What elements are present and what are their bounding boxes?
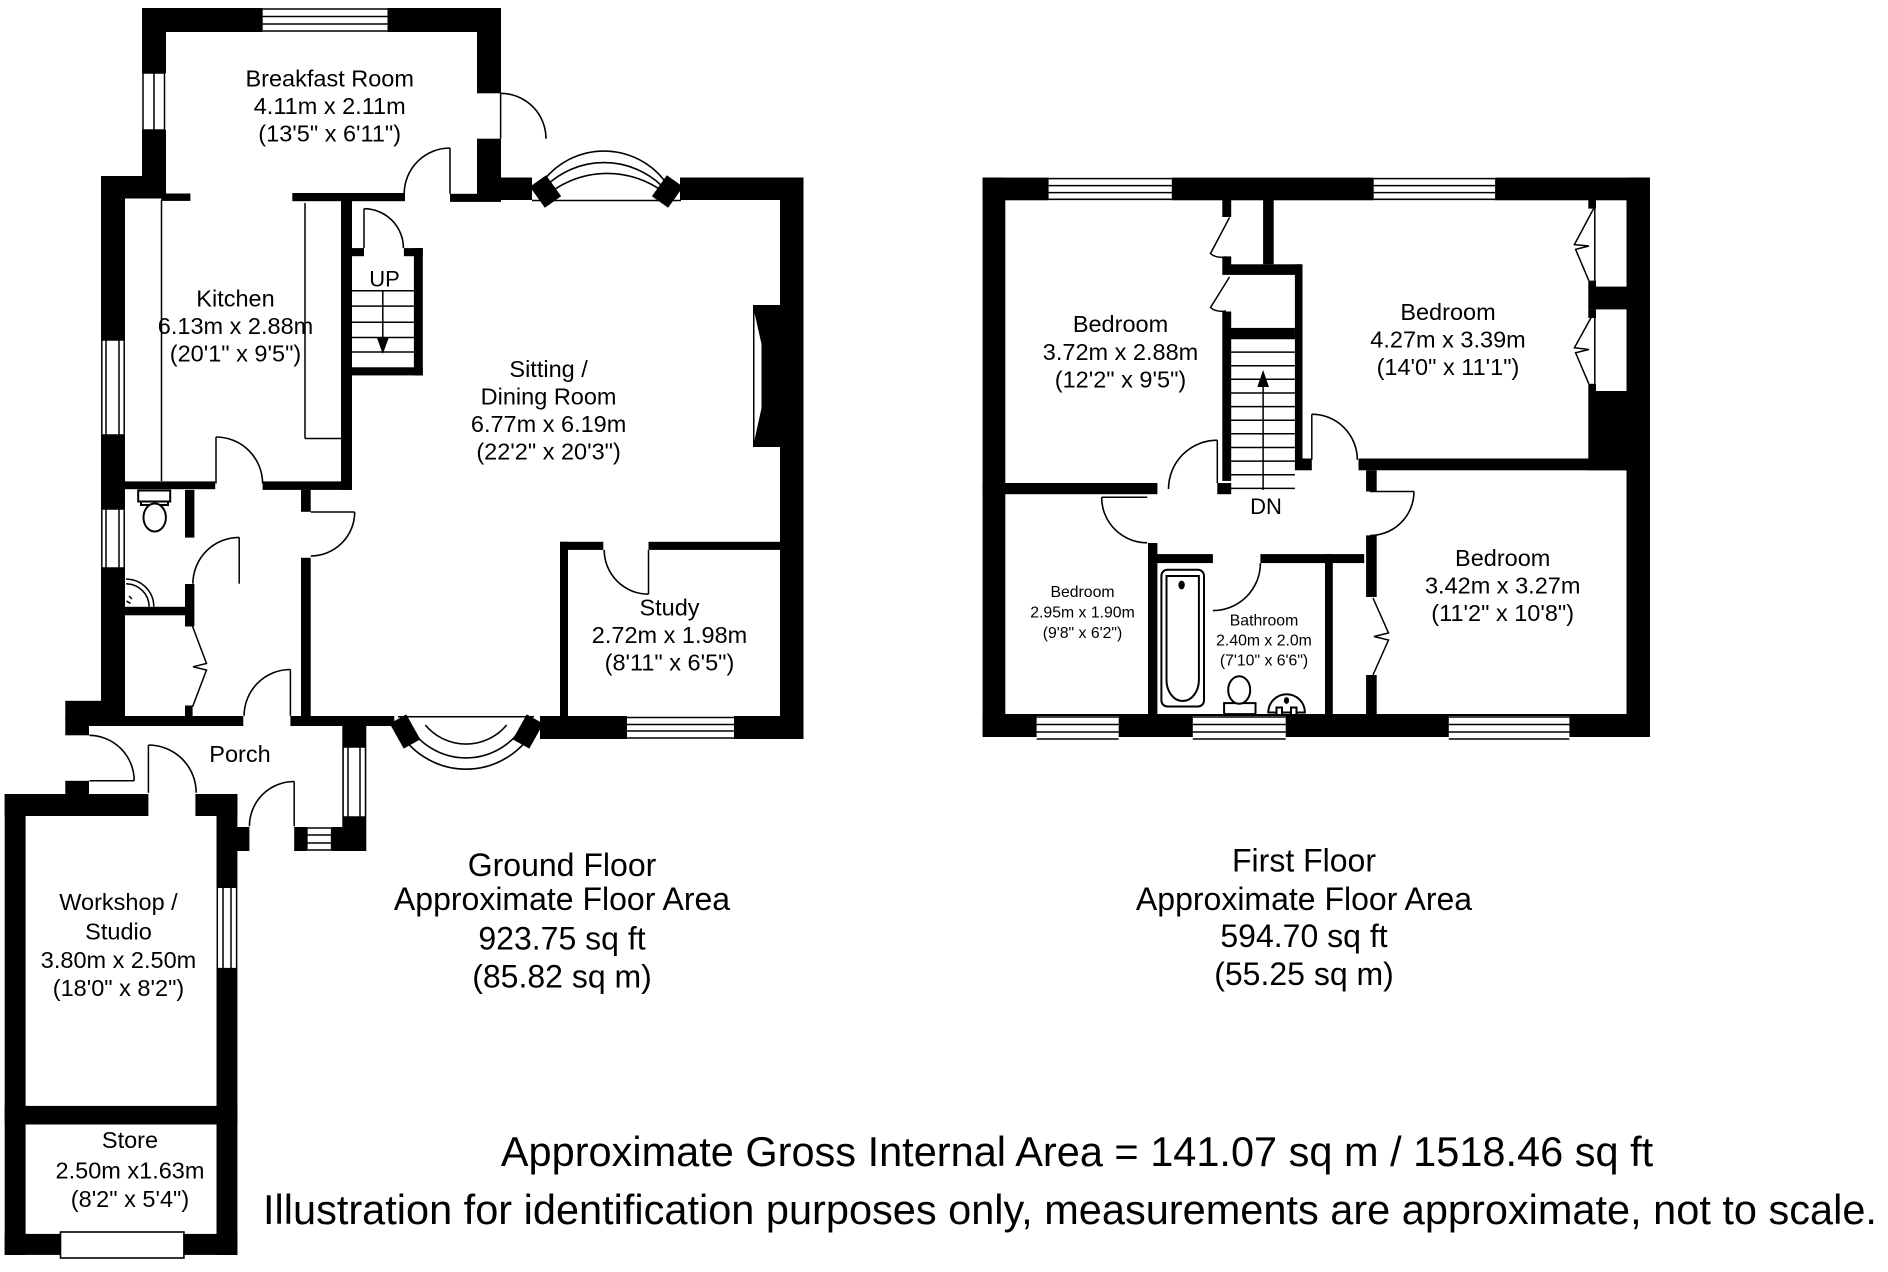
svg-text:Illustration for identificatio: Illustration for identification purposes… (263, 1186, 1877, 1233)
svg-text:Store: Store (102, 1127, 158, 1153)
svg-text:Bedroom: Bedroom (1050, 584, 1114, 601)
svg-text:2.72m x 1.98m: 2.72m x 1.98m (592, 622, 747, 648)
svg-text:Porch: Porch (209, 741, 270, 767)
svg-text:Studio: Studio (85, 919, 152, 945)
svg-text:Bedroom: Bedroom (1073, 311, 1168, 337)
svg-text:3.72m x 2.88m: 3.72m x 2.88m (1043, 339, 1198, 365)
svg-text:(20'1" x 9'5"): (20'1" x 9'5") (170, 341, 301, 367)
svg-text:Sitting /: Sitting / (509, 356, 588, 382)
svg-text:(7'10" x 6'6"): (7'10" x 6'6") (1220, 653, 1308, 670)
svg-text:Approximate Floor Area: Approximate Floor Area (394, 881, 730, 917)
svg-text:4.27m x 3.39m: 4.27m x 3.39m (1370, 327, 1525, 353)
svg-text:Approximate Gross Internal Are: Approximate Gross Internal Area = 141.07… (501, 1128, 1654, 1175)
svg-text:Breakfast Room: Breakfast Room (245, 66, 413, 92)
svg-text:First Floor: First Floor (1232, 843, 1376, 879)
svg-text:(13'5" x 6'11"): (13'5" x 6'11") (258, 121, 401, 147)
svg-text:(55.25 sq m): (55.25 sq m) (1214, 956, 1394, 992)
svg-text:Dining Room: Dining Room (481, 384, 617, 410)
svg-text:2.40m x 2.0m: 2.40m x 2.0m (1216, 633, 1312, 650)
svg-text:(8'11" x 6'5"): (8'11" x 6'5") (605, 650, 735, 676)
svg-text:Kitchen: Kitchen (196, 286, 274, 312)
svg-text:923.75 sq ft: 923.75 sq ft (478, 921, 645, 957)
svg-text:(22'2" x 20'3"): (22'2" x 20'3") (476, 439, 621, 465)
svg-text:(12'2" x 9'5"): (12'2" x 9'5") (1055, 367, 1186, 393)
svg-text:DN: DN (1250, 494, 1282, 519)
svg-text:Bedroom: Bedroom (1455, 545, 1550, 571)
svg-text:Ground Floor: Ground Floor (468, 847, 657, 883)
svg-text:594.70 sq ft: 594.70 sq ft (1220, 918, 1387, 954)
svg-text:6.13m x 2.88m: 6.13m x 2.88m (158, 313, 313, 339)
svg-text:2.50m x1.63m: 2.50m x1.63m (56, 1158, 205, 1184)
svg-text:Bedroom: Bedroom (1400, 299, 1495, 325)
svg-text:Study: Study (639, 595, 699, 621)
svg-text:(8'2" x 5'4"): (8'2" x 5'4") (71, 1186, 189, 1212)
svg-text:Approximate Floor Area: Approximate Floor Area (1136, 881, 1472, 917)
svg-text:3.42m x 3.27m: 3.42m x 3.27m (1425, 573, 1580, 599)
svg-text:(85.82 sq m): (85.82 sq m) (472, 959, 652, 995)
svg-text:Workshop /: Workshop / (59, 889, 178, 915)
svg-text:Bathroom: Bathroom (1230, 613, 1299, 630)
svg-text:(9'8" x 6'2"): (9'8" x 6'2") (1043, 625, 1123, 642)
svg-text:4.11m x 2.11m: 4.11m x 2.11m (254, 93, 406, 119)
svg-text:6.77m x 6.19m: 6.77m x 6.19m (471, 411, 626, 437)
svg-text:(14'0" x 11'1"): (14'0" x 11'1") (1377, 354, 1520, 380)
svg-text:UP: UP (369, 267, 400, 292)
svg-text:3.80m x 2.50m: 3.80m x 2.50m (41, 947, 196, 973)
svg-text:2.95m x 1.90m: 2.95m x 1.90m (1030, 605, 1135, 622)
svg-text:(18'0" x 8'2"): (18'0" x 8'2") (53, 975, 184, 1001)
svg-text:(11'2" x 10'8"): (11'2" x 10'8") (1431, 600, 1574, 626)
